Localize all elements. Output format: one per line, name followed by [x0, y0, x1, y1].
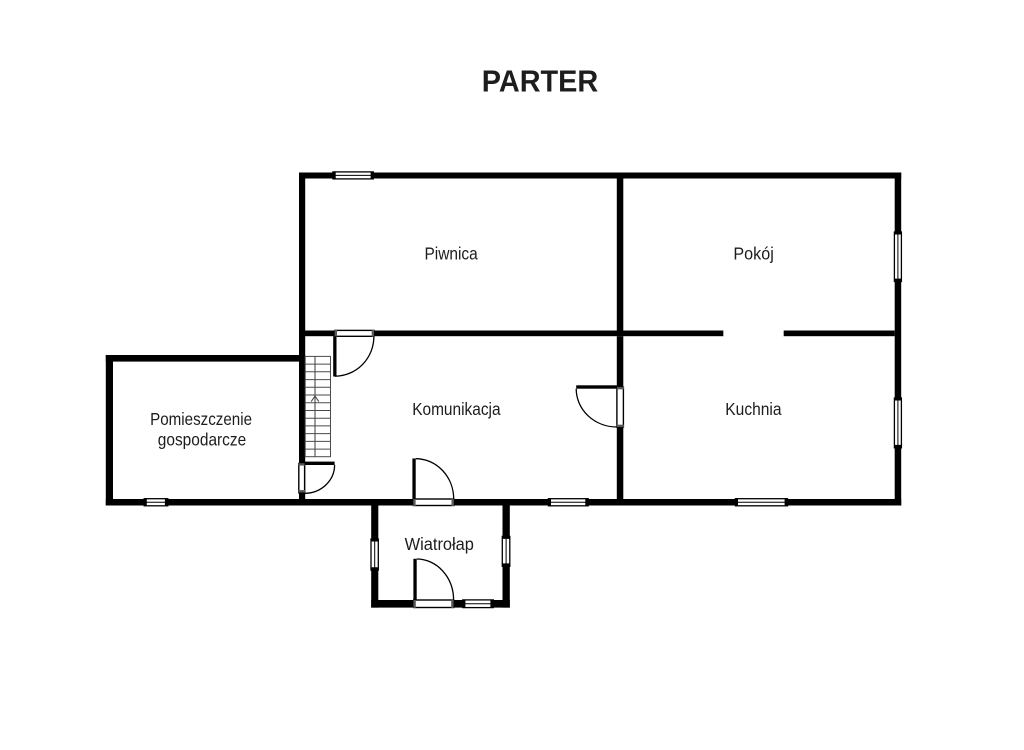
- svg-text:Pokój: Pokój: [733, 243, 773, 263]
- svg-text:Kuchnia: Kuchnia: [725, 399, 781, 419]
- svg-text:gospodarcze: gospodarcze: [158, 429, 246, 449]
- svg-text:Piwnica: Piwnica: [424, 243, 478, 263]
- svg-text:Pomieszczenie: Pomieszczenie: [150, 409, 252, 429]
- svg-text:PARTER: PARTER: [482, 64, 599, 99]
- svg-text:Wiatrołap: Wiatrołap: [405, 534, 474, 554]
- svg-text:Komunikacja: Komunikacja: [412, 399, 501, 419]
